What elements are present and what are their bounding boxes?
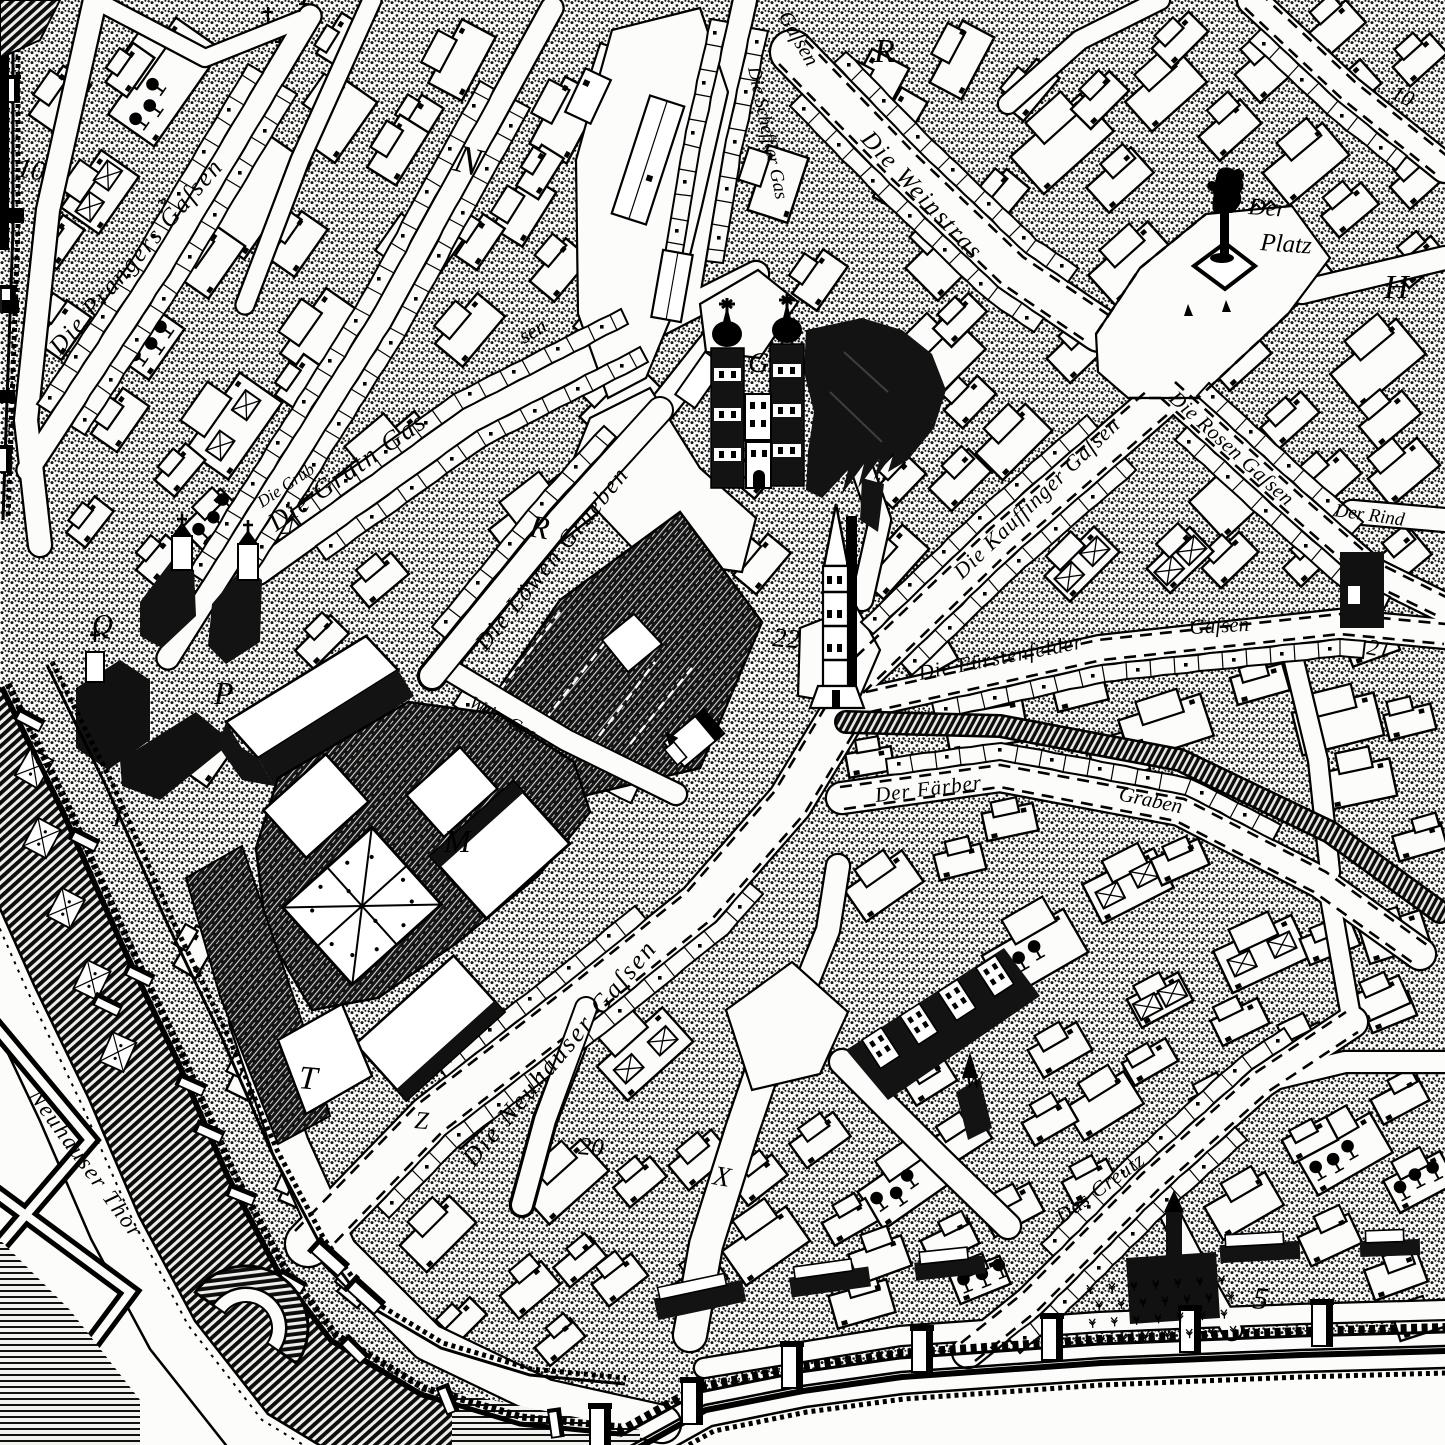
svg-text:10: 10 (15, 152, 48, 187)
svg-text:Q: Q (92, 609, 113, 641)
svg-text:P: P (213, 675, 234, 711)
svg-text:M: M (443, 823, 473, 859)
svg-text:H: H (1383, 269, 1411, 306)
svg-text:Platz: Platz (1259, 229, 1313, 260)
svg-text:5: 5 (1251, 1280, 1269, 1316)
svg-text:G: G (748, 347, 769, 379)
svg-text:Gaſsen: Gaſsen (1189, 612, 1250, 639)
svg-text:21: 21 (1365, 634, 1392, 663)
svg-text:20: 20 (577, 1133, 605, 1162)
svg-text:W: W (964, 1068, 985, 1093)
svg-text:22: 22 (771, 622, 801, 654)
svg-text:Der: Der (1247, 194, 1288, 223)
svg-text:R: R (873, 33, 895, 70)
